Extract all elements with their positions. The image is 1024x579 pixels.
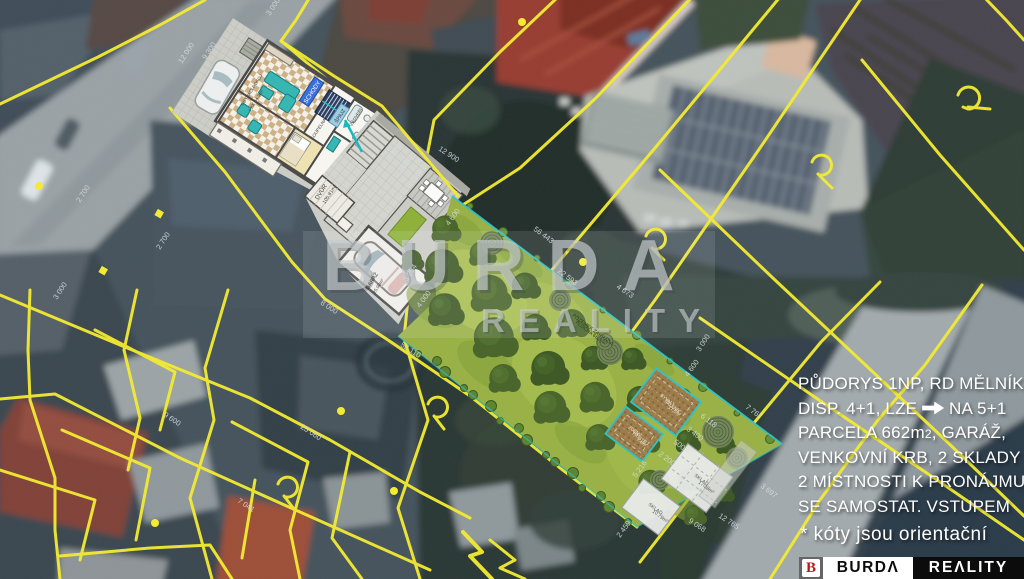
svg-text:BURDA: BURDA	[323, 226, 698, 306]
